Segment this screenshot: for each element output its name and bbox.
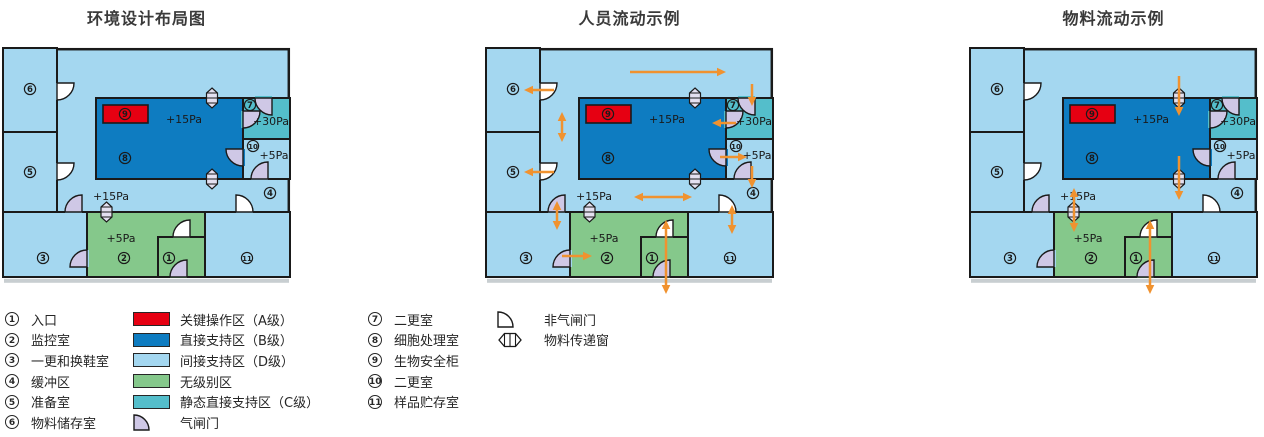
legend-number-icon: 8 [368, 333, 385, 347]
legend-label: 间接支持区（D级） [180, 351, 294, 370]
diagram-personnel-flow: 人员流动示例 6532111471089+15Pa+30Pa+5Pa+15Pa+… [486, 0, 773, 300]
legend-item: 3一更和换鞋室 [5, 350, 109, 371]
diagram-shadow [4, 279, 289, 283]
pressure-label: +15Pa [93, 190, 129, 203]
room-11 [1172, 212, 1257, 277]
pressure-label: +15Pa [1133, 113, 1169, 126]
legend-color-swatch [133, 353, 171, 367]
diagram-material-flow: 物料流动示例 6532111471089+15Pa+30Pa+5Pa+15Pa+… [970, 0, 1257, 300]
floorplan-material-flow: 6532111471089+15Pa+30Pa+5Pa+15Pa+5Pa [970, 48, 1257, 300]
svg-text:9: 9 [1089, 110, 1095, 120]
svg-text:10: 10 [1215, 143, 1225, 151]
diagram-title: 环境设计布局图 [3, 5, 290, 29]
legend-item: 物料传递窗 [497, 330, 609, 351]
legend-color-swatch [133, 333, 171, 347]
legend-number-icon: 7 [368, 312, 385, 326]
legend-item: 静态直接支持区（C级） [133, 391, 319, 412]
svg-text:10: 10 [248, 143, 258, 151]
room-number-label: 11 [241, 252, 252, 263]
diagram-title: 物料流动示例 [970, 5, 1257, 29]
legend-label: 无级别区 [180, 372, 232, 391]
pressure-label: +15Pa [649, 113, 685, 126]
pressure-label: +15Pa [576, 190, 612, 203]
pressure-label: +30Pa [1220, 115, 1256, 128]
svg-text:8: 8 [605, 154, 611, 164]
legend-item: 6物料储存室 [5, 412, 109, 433]
pass-through-window-icon [497, 332, 535, 348]
legend-label: 细胞处理室 [394, 330, 459, 349]
room-number-label: 10 [1214, 140, 1225, 151]
legend-column: 7二更室8细胞处理室9生物安全柜10二更室11样品贮存室 [368, 309, 459, 412]
svg-text:6: 6 [27, 85, 33, 95]
svg-text:1: 1 [166, 254, 172, 264]
legend-item: 4缓冲区 [5, 371, 109, 392]
legend-label: 物料储存室 [31, 413, 96, 432]
svg-text:2: 2 [121, 254, 127, 264]
legend-item: 5准备室 [5, 391, 109, 412]
svg-text:4: 4 [1234, 189, 1240, 199]
legend: 1入口2监控室3一更和换鞋室4缓冲区5准备室6物料储存室关键操作区（A级）直接支… [0, 309, 1264, 437]
legend-item: 间接支持区（D级） [133, 350, 319, 371]
svg-text:7: 7 [247, 101, 253, 111]
legend-item: 气闸门 [133, 412, 319, 433]
legend-column: 关键操作区（A级）直接支持区（B级）间接支持区（D级）无级别区静态直接支持区（C… [133, 309, 319, 433]
floorplan-personnel-flow: 6532111471089+15Pa+30Pa+5Pa+15Pa+5Pa [486, 48, 773, 300]
svg-text:9: 9 [122, 110, 128, 120]
legend-label: 样品贮存室 [394, 392, 459, 411]
legend-column: 1入口2监控室3一更和换鞋室4缓冲区5准备室6物料储存室 [5, 309, 109, 433]
legend-number-icon: 5 [5, 395, 22, 409]
legend-label: 监控室 [31, 330, 70, 349]
legend-label: 一更和换鞋室 [31, 351, 109, 370]
legend-item: 无级别区 [133, 371, 319, 392]
legend-item: 1入口 [5, 309, 109, 330]
svg-text:5: 5 [27, 168, 33, 178]
svg-text:6: 6 [994, 85, 1000, 95]
pressure-label: +15Pa [166, 113, 202, 126]
svg-text:9: 9 [605, 110, 611, 120]
legend-label: 静态直接支持区（C级） [180, 392, 319, 411]
legend-item: 直接支持区（B级） [133, 330, 319, 351]
non-airlock-door-icon [497, 311, 535, 328]
room-number-label: 11 [724, 252, 735, 263]
legend-label: 生物安全柜 [394, 351, 459, 370]
diagram-layout: 环境设计布局图 6532111471089+15Pa+30Pa+5Pa+15Pa… [3, 0, 290, 300]
svg-text:5: 5 [510, 168, 516, 178]
svg-text:10: 10 [731, 143, 741, 151]
legend-label: 缓冲区 [31, 372, 70, 391]
legend-label: 二更室 [394, 310, 433, 329]
legend-color-swatch [133, 395, 171, 409]
pressure-label: +5Pa [106, 232, 135, 245]
legend-column: 非气闸门物料传递窗 [497, 309, 609, 350]
diagram-title: 人员流动示例 [486, 5, 773, 29]
airlock-door-icon [133, 414, 171, 431]
pressure-label: +5Pa [259, 149, 288, 162]
legend-number-icon: 10 [368, 374, 385, 388]
legend-number-icon: 11 [368, 395, 385, 409]
svg-text:1: 1 [1133, 254, 1139, 264]
svg-text:7: 7 [1214, 101, 1220, 111]
pressure-label: +5Pa [589, 232, 618, 245]
room-number-label: 10 [730, 140, 741, 151]
legend-item: 非气闸门 [497, 309, 609, 330]
svg-text:3: 3 [40, 254, 46, 264]
legend-label: 入口 [31, 310, 57, 329]
svg-text:3: 3 [523, 254, 529, 264]
pass-through-window-icon [690, 169, 701, 189]
legend-item: 9生物安全柜 [368, 350, 459, 371]
diagram-shadow [487, 279, 772, 283]
svg-text:7: 7 [730, 101, 736, 111]
legend-color-swatch [133, 312, 171, 326]
pass-through-window-icon [207, 88, 218, 108]
pressure-label: +5Pa [1073, 232, 1102, 245]
pass-through-window-icon [690, 88, 701, 108]
svg-text:2: 2 [604, 254, 610, 264]
room-11 [205, 212, 290, 277]
legend-number-icon: 1 [5, 312, 22, 326]
legend-item: 8细胞处理室 [368, 330, 459, 351]
svg-text:11: 11 [725, 255, 735, 263]
svg-text:11: 11 [1209, 255, 1219, 263]
legend-item: 10二更室 [368, 371, 459, 392]
pass-through-window-icon [584, 202, 595, 222]
legend-number-icon: 6 [5, 415, 22, 429]
room-number-label: 11 [1208, 252, 1219, 263]
pressure-label: +5Pa [742, 149, 771, 162]
room-number-label: 10 [247, 140, 258, 151]
cleanroom-layout-page: 环境设计布局图 6532111471089+15Pa+30Pa+5Pa+15Pa… [0, 0, 1264, 437]
svg-text:4: 4 [267, 189, 273, 199]
legend-label: 非气闸门 [544, 310, 596, 329]
svg-text:2: 2 [1088, 254, 1094, 264]
legend-item: 关键操作区（A级） [133, 309, 319, 330]
legend-color-swatch [133, 374, 171, 388]
diagram-shadow [971, 279, 1256, 283]
pass-through-window-icon [207, 169, 218, 189]
svg-text:3: 3 [1007, 254, 1013, 264]
room-11 [688, 212, 773, 277]
legend-item: 7二更室 [368, 309, 459, 330]
svg-text:6: 6 [510, 85, 516, 95]
pressure-label: +30Pa [253, 115, 289, 128]
pressure-label: +5Pa [1226, 149, 1255, 162]
legend-item: 11样品贮存室 [368, 391, 459, 412]
legend-number-icon: 4 [5, 374, 22, 388]
svg-text:8: 8 [1089, 154, 1095, 164]
svg-text:4: 4 [750, 189, 756, 199]
legend-label: 关键操作区（A级） [180, 310, 293, 329]
legend-item: 2监控室 [5, 330, 109, 351]
pass-through-window-icon [101, 202, 112, 222]
legend-number-icon: 2 [5, 333, 22, 347]
floorplan-layout: 6532111471089+15Pa+30Pa+5Pa+15Pa+5Pa [3, 48, 290, 300]
legend-label: 气闸门 [180, 413, 219, 432]
legend-number-icon: 9 [368, 353, 385, 367]
svg-text:1: 1 [649, 254, 655, 264]
svg-text:11: 11 [242, 255, 252, 263]
legend-label: 准备室 [31, 392, 70, 411]
svg-text:8: 8 [122, 154, 128, 164]
legend-label: 直接支持区（B级） [180, 330, 293, 349]
legend-label: 二更室 [394, 372, 433, 391]
legend-label: 物料传递窗 [544, 330, 609, 349]
legend-number-icon: 3 [5, 353, 22, 367]
pressure-label: +30Pa [736, 115, 772, 128]
svg-text:5: 5 [994, 168, 1000, 178]
